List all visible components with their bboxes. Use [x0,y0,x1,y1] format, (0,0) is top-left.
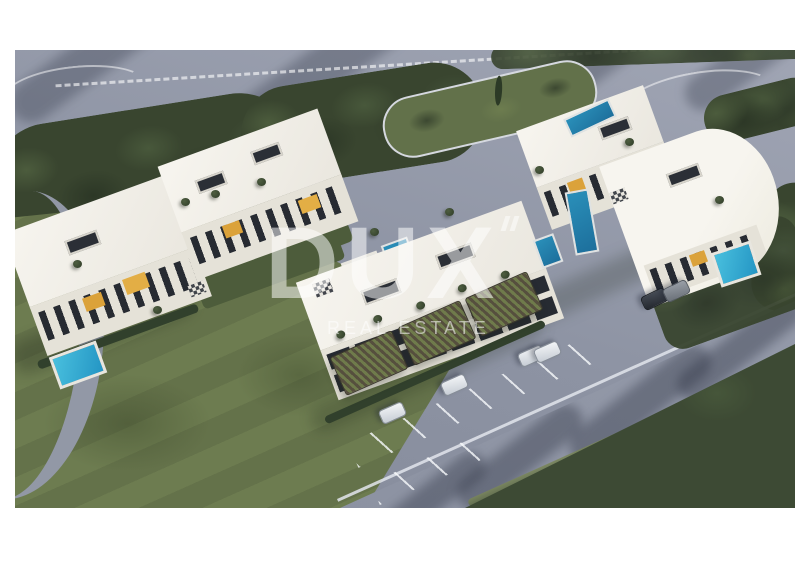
photo-page: DUX REAL ESTATE [0,0,800,566]
cypress-tree [494,75,503,105]
watermark-subtitle: REAL ESTATE [327,319,490,337]
skylight [666,163,703,188]
shrub [715,196,724,204]
aerial-render-photo: DUX REAL ESTATE [15,50,795,508]
watermark-logo: DUX [265,212,501,314]
shrub [181,198,190,206]
skylight [64,230,101,256]
shrub [257,178,266,186]
shrub [625,138,634,146]
shrub [73,260,82,268]
shrub [535,166,544,174]
skylight [250,142,283,165]
shrub [153,306,162,314]
shrub [211,190,220,198]
